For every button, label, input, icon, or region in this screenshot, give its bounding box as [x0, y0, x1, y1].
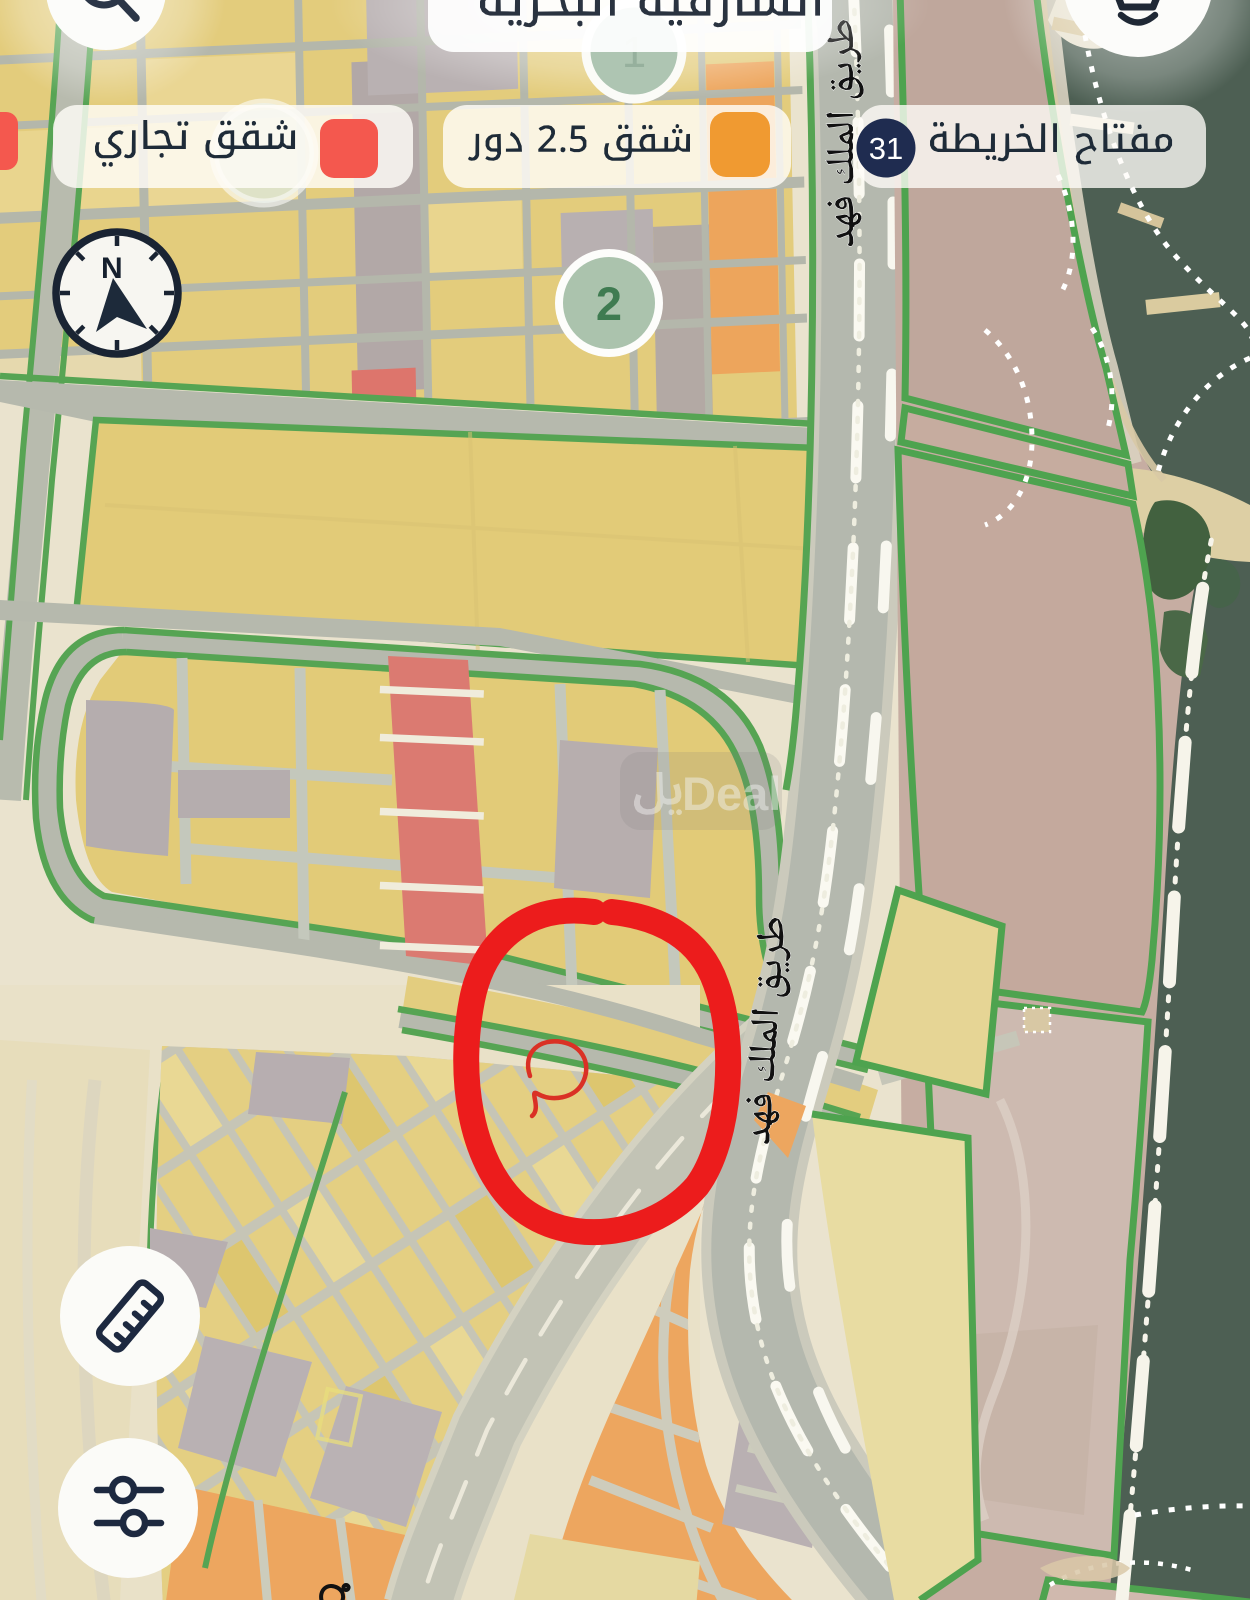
svg-text:N: N	[101, 252, 123, 285]
svg-text:Deal: Deal	[682, 767, 781, 820]
svg-text:31: 31	[869, 131, 903, 166]
svg-text:2: 2	[596, 277, 622, 330]
